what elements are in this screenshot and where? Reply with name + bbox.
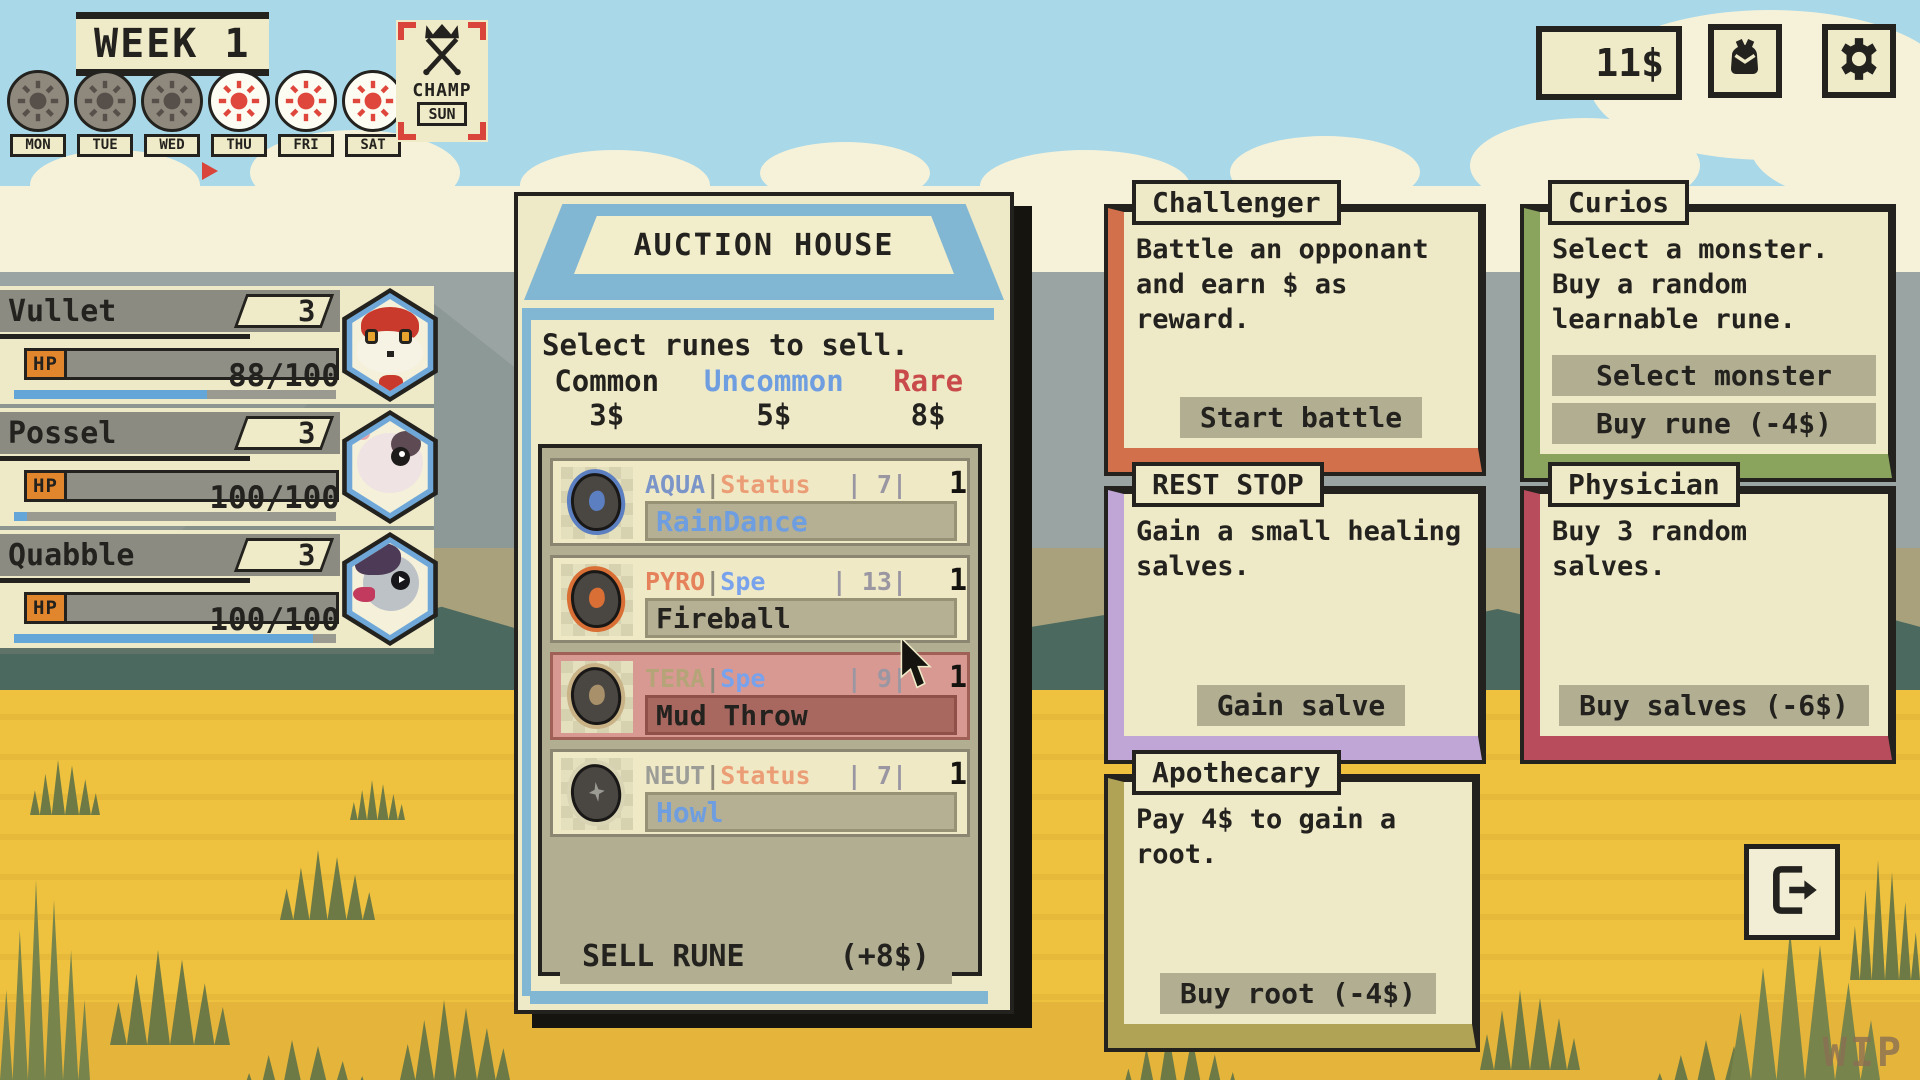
day-label: MON [10,134,66,157]
sell-rune-button[interactable]: SELL RUNE (+8$) [560,928,952,984]
flag-marker [202,162,218,180]
rune-stone-icon [561,758,633,830]
auction-subtitle: Select runes to sell. [542,328,909,362]
gear-icon [1834,34,1884,88]
rarity-rare-price: 8$ [870,398,986,432]
avatar[interactable] [338,410,442,524]
rune-row-fireball[interactable]: PYRO|Spe 13 1 Fireball [550,555,970,643]
rune-category: Status [720,761,810,790]
crown-crossed-swords-icon [415,24,469,80]
rune-quantity: 1 [907,757,967,792]
exit-door-icon [1759,857,1825,927]
sell-rune-price: (+8$) [840,939,930,974]
bag-icon [1721,35,1769,87]
hp-label: HP [24,592,67,624]
shop-description: Pay 4$ to gain a root. [1124,782,1472,872]
monster-name: Possel [8,416,116,451]
rune-row-raindance[interactable]: AQUA|Status 7 1 RainDance [550,458,970,546]
rune-category: Spe [720,664,765,693]
monster-name-bar: Vullet 3 [0,290,340,332]
inventory-bag-button[interactable] [1708,24,1782,98]
rune-type: TERA [645,664,705,693]
cloud [30,150,200,220]
rune-quantity: 1 [907,563,967,598]
sun-icon [342,70,404,132]
day-wed: WED [140,70,204,157]
auction-title: AUCTION HOUSE [574,216,954,274]
monster-name: Quabble [8,538,134,573]
day-mon: MON [6,70,70,157]
rarity-uncommon-label: Uncommon [677,364,870,398]
sun-icon [208,70,270,132]
sell-rune-label: SELL RUNE [582,939,745,974]
rune-name: Mud Throw [645,695,957,735]
party-member-quabble[interactable]: Quabble 3 HP 100/100 [0,530,434,648]
rune-power: 7 [847,470,907,499]
champ-day-label: SUN [417,102,466,126]
avatar[interactable] [338,532,442,646]
monster-name-bar: Possel 3 [0,412,340,454]
auction-house-panel: AUCTION HOUSE Select runes to sell. Comm… [514,192,1014,1014]
rarity-uncommon-price: 5$ [677,398,870,432]
settings-button[interactable] [1822,24,1896,98]
shop-description: Select a monster. Buy a random learnable… [1540,212,1888,337]
shop-challenger: Challenger Battle an opponant and earn $… [1108,208,1482,472]
select-monster-button[interactable]: Select monster [1552,355,1876,396]
hp-label: HP [24,348,67,380]
rune-name: Fireball [645,598,957,638]
champ-label: CHAMP [412,80,471,101]
game-screen: WEEK 1 MON TUE WED THU FRI SAT [0,0,1920,1080]
left-trim [522,308,531,996]
hp-value: 100/100 [180,480,340,516]
rarity-common-price: 3$ [536,398,677,432]
day-label: TUE [77,134,133,157]
buy-rune-button[interactable]: Buy rune (-4$) [1552,403,1876,444]
week-day-strip: MON TUE WED THU FRI SAT [6,70,405,157]
rune-row-mud-throw-selected[interactable]: TERA|Spe 9 1 Mud Throw [550,652,970,740]
exit-area-button[interactable] [1744,844,1840,940]
shop-rest-stop: REST STOP Gain a small healing salves. G… [1108,490,1482,760]
rune-type: AQUA [645,470,705,499]
shop-description: Buy 3 random salves. [1540,494,1888,584]
rune-list: AQUA|Status 7 1 RainDance PYRO|Spe 13 1 … [538,444,982,976]
level-badge: 3 [234,538,334,572]
rarity-rare-label: Rare [870,364,986,398]
rune-category: Status [720,470,810,499]
hp-value: 100/100 [180,602,340,638]
week-label: WEEK 1 [76,12,269,76]
shop-description: Battle an opponant and earn $ as reward. [1124,212,1478,337]
shop-curios: Curios Select a monster. Buy a random le… [1524,208,1892,478]
day-thu: THU [207,70,271,157]
wip-watermark: WIP [1823,1030,1904,1076]
day-fri: FRI [274,70,338,157]
buy-salves-button[interactable]: Buy salves (-6$) [1559,685,1869,726]
rune-stone-icon [561,467,633,539]
monster-name: Vullet [8,294,116,329]
bottom-trim [530,991,988,1004]
level-badge: 3 [234,416,334,450]
sun-icon [275,70,337,132]
day-label: FRI [278,134,334,157]
party-member-possel[interactable]: Possel 3 HP 100/100 [0,408,434,526]
party-member-vullet[interactable]: Vullet 3 HP 88/100 [0,286,434,404]
monster-name-bar: Quabble 3 [0,534,340,576]
sun-icon [141,70,203,132]
rune-type: PYRO [645,567,705,596]
rune-power: 9 [847,664,907,693]
rune-stone-icon [561,564,633,636]
shop-apothecary: Apothecary Pay 4$ to gain a root. Buy ro… [1108,778,1476,1048]
hp-value: 88/100 [180,358,340,394]
rune-quantity: 1 [907,466,967,501]
hp-label: HP [24,470,67,502]
day-label: WED [144,134,200,157]
shop-physician: Physician Buy 3 random salves. Buy salve… [1524,490,1892,760]
rarity-price-legend: Common3$ Uncommon5$ Rare8$ [536,364,986,432]
sun-icon [74,70,136,132]
rune-stone-icon [561,661,633,733]
rune-name: Howl [645,792,957,832]
rune-quantity: 1 [907,660,967,695]
day-label: THU [211,134,267,157]
shop-description: Gain a small healing salves. [1124,494,1478,584]
shop-title: Challenger [1132,180,1341,225]
shop-title: Physician [1548,462,1740,507]
shop-title: REST STOP [1132,462,1324,507]
day-label: SAT [345,134,401,157]
rune-category: Spe [720,567,765,596]
rune-power: 13 [832,567,907,596]
buy-root-button[interactable]: Buy root (-4$) [1160,973,1436,1014]
gain-salve-button[interactable]: Gain salve [1197,685,1406,726]
money-counter: 11$ [1536,26,1682,100]
day-tue: TUE [73,70,137,157]
sun-icon [7,70,69,132]
level-badge: 3 [234,294,334,328]
rune-power: 7 [847,761,907,790]
rune-name: RainDance [645,501,957,541]
shop-title: Apothecary [1132,750,1341,795]
rune-row-howl[interactable]: NEUT|Status 7 1 Howl [550,749,970,837]
rune-type: NEUT [645,761,705,790]
divider [530,308,994,320]
shop-title: Curios [1548,180,1689,225]
start-battle-button[interactable]: Start battle [1180,397,1422,438]
rarity-common-label: Common [536,364,677,398]
champion-day-badge: CHAMP SUN [396,20,488,142]
avatar[interactable] [338,288,442,402]
